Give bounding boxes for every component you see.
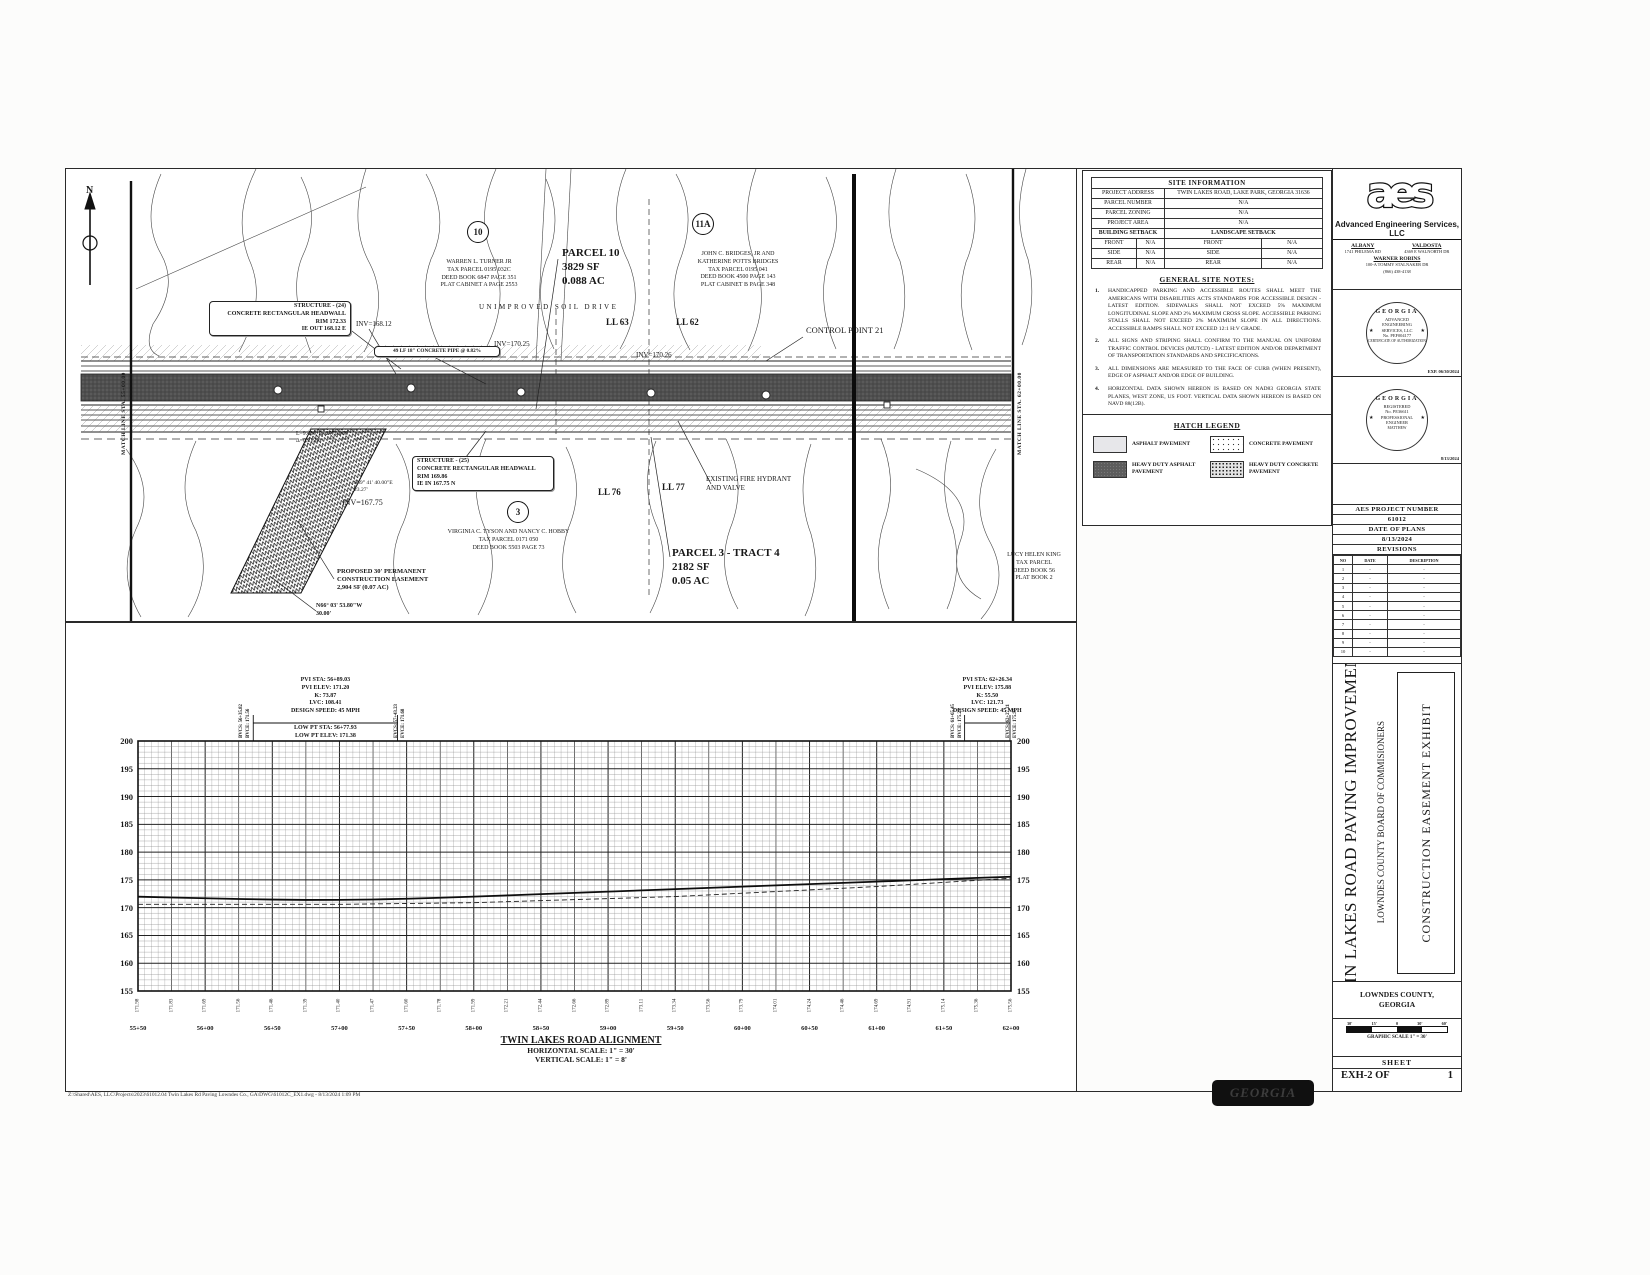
grade-elevation-value: 175.36 (975, 991, 980, 1021)
graphic-scale-bar (1346, 1026, 1448, 1033)
stamp-expiration: EXP. 06/30/2024 (1428, 369, 1459, 374)
parcel-3-label: PARCEL 3 - TRACT 42182 SF0.05 AC (672, 547, 780, 588)
grade-elevation-value: 173.56 (706, 991, 711, 1021)
project-number: 61012 (1333, 515, 1461, 525)
elevation-tick-right: 160 (1017, 958, 1030, 968)
station-label: 60+00 (720, 1025, 764, 1032)
match-line-right-label: MATCH LINE STA. 62+00.00 (1017, 372, 1023, 455)
sheet-number: EXH-2 OF (1341, 1070, 1390, 1081)
easement-label: PROPOSED 30' PERMANENTCONSTRUCTION EASEM… (337, 568, 428, 592)
blank-section (1333, 464, 1461, 505)
station-label: 61+00 (855, 1025, 899, 1032)
inv-168-label: INV=168.12 (356, 320, 392, 329)
profile-vertical-scale: VERTICAL SCALE: 1" = 8' (481, 1055, 681, 1064)
revision-row: 5-- (1334, 601, 1461, 610)
match-line-left-label: MATCH LINE STA. 55+00.00 (121, 372, 127, 455)
grade-elevation-value: 171.78 (438, 991, 443, 1021)
legend-item-asphalt: ASPHALT PAVEMENT (1093, 436, 1204, 453)
elevation-tick-left: 155 (111, 986, 133, 996)
revisions-table: NO DATE DESCRIPTION 1-- 2-- 3-- 4-- 5-- (1333, 555, 1461, 657)
owner-text-parcel-10: WARREN L. TURNER JRTAX PARCEL 0195 032CD… (399, 259, 559, 290)
evce-label: EVCE: 171.68 (401, 709, 406, 738)
station-label: 57+00 (317, 1025, 361, 1032)
title-block-column: aes Advanced Engineering Services, LLC A… (1332, 168, 1462, 1092)
site-info-label: PARCEL NUMBER (1092, 199, 1165, 209)
evcs-label: EVCS: 62+27.21 (1006, 704, 1011, 738)
site-note: 2. ALL SIGNS AND STRIPING SHALL CONFIRM … (1083, 338, 1331, 366)
site-info-label: PROJECT ADDRESS (1092, 189, 1165, 199)
pe-stamp-box: GEORGIA REGISTERED No. PE36611 PROFESSIO… (1333, 377, 1461, 464)
profile-horizontal-scale: HORIZONTAL SCALE: 1" = 30' (481, 1046, 681, 1055)
revision-row: 3-- (1334, 583, 1461, 592)
parcel-bubble-3: 3 (507, 501, 529, 523)
unimproved-drive-label: UNIMPROVED SOIL DRIVE (479, 303, 618, 312)
aes-logo: aes (1334, 169, 1460, 215)
asphalt-swatch (1093, 436, 1127, 453)
revision-row: 8-- (1334, 629, 1461, 638)
landscape-setback-header: LANDSCAPE SETBACK (1164, 229, 1322, 239)
station-label: 55+50 (116, 1025, 160, 1032)
professional-engineer-stamp: GEORGIA REGISTERED No. PE36611 PROFESSIO… (1366, 389, 1428, 451)
elevation-tick-right: 165 (1017, 930, 1030, 940)
bvcs-label: BVCS: 61+65.45 (951, 704, 956, 738)
setback-rows: FRONTN/AFRONTN/A SIDEN/ASIDEN/A REARN/AR… (1092, 239, 1323, 269)
elevation-tick-right: 180 (1017, 847, 1030, 857)
client-name: LOWNDES COUNTY BOARD OF COMMISIONERS (1376, 721, 1386, 923)
control-point-label: CONTROL POINT 21 (806, 325, 883, 336)
sheet-number-section: SHEET EXH-2 OF 1 (1333, 1057, 1461, 1087)
profile-view-panel: 2002001951951901901851851801801751751701… (65, 622, 1077, 1092)
building-setback-header: BUILDING SETBACK (1092, 229, 1165, 239)
revisions-section: NO DATE DESCRIPTION 1-- 2-- 3-- 4-- 5-- (1333, 555, 1461, 664)
elevation-tick-right: 175 (1017, 875, 1030, 885)
curve-data-label: L=9.480, R=2470.000Δ=0.2199 (296, 431, 348, 445)
station-label: 61+50 (922, 1025, 966, 1032)
stamp-date: 8/13/2024 (1441, 456, 1459, 461)
firm-logo-box: aes Advanced Engineering Services, LLC A… (1333, 169, 1461, 290)
general-site-notes-list: 1. HANDICAPPED PARKING AND ACCESSIBLE RO… (1083, 288, 1331, 414)
site-info-value: TWIN LAKES ROAD, LAKE PARK, GEORGIA 3163… (1164, 189, 1322, 199)
firm-phone: (866) 438-4138 (1333, 269, 1461, 274)
plan-sheet: { "colors":{"ink":"#1a1a1a","paper":"#ff… (0, 0, 1650, 1275)
site-info-value: N/A (1164, 209, 1322, 219)
site-info-title: SITE INFORMATION (1092, 178, 1323, 189)
revision-row: 9-- (1334, 638, 1461, 647)
grade-elevation-value: 174.24 (807, 991, 812, 1021)
grade-elevation-value: 173.11 (639, 991, 644, 1021)
exhibit-title-box: CONSTRUCTION EASEMENT EXHIBIT (1397, 672, 1455, 974)
fire-hydrant-label: EXISTING FIRE HYDRANTAND VALVE (706, 475, 791, 493)
station-label: 58+50 (519, 1025, 563, 1032)
profile-title: TWIN LAKES ROAD ALIGNMENT (481, 1035, 681, 1046)
graphic-scale-section: 30'15'030'60' GRAPHIC SCALE 1" = 30' (1333, 1019, 1461, 1057)
structure-24-callout: STRUCTURE - (24)CONCRETE RECTANGULAR HEA… (209, 301, 351, 336)
inv-170a-label: INV=170.25 (494, 340, 530, 349)
grade-elevation-value: 171.60 (404, 991, 409, 1021)
north-arrow-label: N (86, 185, 93, 196)
parcel-bubble-11a: 11A (692, 213, 714, 235)
grade-elevation-value: 171.83 (169, 991, 174, 1021)
legend-item-heavy-concrete: HEAVY DUTY CONCRETE PAVEMENT (1210, 461, 1321, 478)
heavy-asphalt-swatch (1093, 461, 1127, 478)
grade-elevation-value: 171.39 (303, 991, 308, 1021)
revision-row: 7-- (1334, 620, 1461, 629)
plan-linework (66, 169, 1076, 621)
plan-view-panel: N MATCH LINE STA. 55+00.00 MATCH LINE ST… (65, 168, 1077, 622)
owner-text-parcel-3: VIRGINIA C. TYSON AND NANCY C. HOBBYTAX … (436, 529, 581, 552)
parcel-10-label: PARCEL 103829 SF0.088 AC (562, 247, 620, 288)
revision-row: 1-- (1334, 565, 1461, 574)
certificate-stamp-box: GEORGIA ADVANCED ENGINEERING SERVICES, L… (1333, 290, 1461, 377)
rev-header-description: DESCRIPTION (1388, 556, 1461, 565)
station-label: 56+50 (250, 1025, 294, 1032)
grade-elevation-value: 171.56 (236, 991, 241, 1021)
elevation-tick-left: 190 (111, 792, 133, 802)
elevation-tick-right: 195 (1017, 764, 1030, 774)
bvce-label: BVCE: 175.25 (958, 709, 963, 738)
star-icon: ★ (1369, 329, 1373, 335)
bvcs-label: BVCS: 56+35.82 (239, 704, 244, 738)
revision-row: 4-- (1334, 592, 1461, 601)
elevation-tick-right: 190 (1017, 792, 1030, 802)
certificate-of-authorization-stamp: GEORGIA ADVANCED ENGINEERING SERVICES, L… (1366, 302, 1428, 364)
grade-elevation-value: 171.47 (371, 991, 376, 1021)
sheet-label: SHEET (1333, 1057, 1461, 1069)
revision-row: 6-- (1334, 611, 1461, 620)
file-path-footer: Z:\Shared\AES, LLC\Projects\2023\61012.0… (68, 1092, 360, 1098)
star-icon: ★ (1421, 329, 1425, 335)
site-info-value: N/A (1164, 199, 1322, 209)
grade-elevation-value: 172.66 (572, 991, 577, 1021)
bearing-n66-label: N66° 03' 53.80"W30.00' (316, 603, 362, 618)
elevation-tick-right: 185 (1017, 819, 1030, 829)
grade-elevation-value: 175.14 (941, 991, 946, 1021)
concrete-swatch (1210, 436, 1244, 453)
grade-elevation-value: 174.46 (841, 991, 846, 1021)
grade-elevation-value: 171.98 (136, 991, 141, 1021)
lot-line-76-label: LL 76 (598, 487, 621, 498)
lot-line-77-label: LL 77 (662, 482, 685, 493)
grade-elevation-value: 174.01 (773, 991, 778, 1021)
aes-logo-text: aes (1367, 169, 1434, 215)
owner-text-king: LUCY HELEN KINGTAX PARCELDEED BOOK 56PLA… (994, 552, 1074, 583)
pvi-annotation: PVI STA: 62+26.34PVI ELEV: 175.88K: 55.5… (912, 677, 1062, 716)
station-label: 62+00 (989, 1025, 1033, 1032)
grade-elevation-value: 171.99 (471, 991, 476, 1021)
elevation-tick-right: 170 (1017, 903, 1030, 913)
heavy-duty-asphalt-band (81, 374, 1011, 401)
site-info-label: PARCEL ZONING (1092, 209, 1165, 219)
lot-line-62-label: LL 62 (676, 317, 699, 328)
project-title: TWIN LAKES ROAD PAVING IMPROVEMENTS (1341, 664, 1361, 982)
revisions-label: REVISIONS (1333, 545, 1461, 554)
star-icon: ★ (1369, 416, 1373, 422)
station-label: 60+50 (788, 1025, 832, 1032)
date-of-plans: 8/13/2024 (1333, 535, 1461, 545)
site-info-value: N/A (1164, 219, 1322, 229)
elevation-tick-left: 165 (111, 930, 133, 940)
hatch-legend: HATCH LEGEND ASPHALT PAVEMENT CONCRETE P… (1083, 414, 1331, 486)
hatch-legend-title: HATCH LEGEND (1083, 421, 1331, 430)
station-label: 57+50 (385, 1025, 429, 1032)
revision-row: 10-- (1334, 647, 1461, 656)
grade-elevation-value: 174.91 (908, 991, 913, 1021)
grade-elevation-value: 171.69 (203, 991, 208, 1021)
graphic-scale-caption: GRAPHIC SCALE 1" = 30' (1333, 1035, 1461, 1040)
grade-elevation-value: 175.56 (1009, 991, 1014, 1021)
site-information-table: SITE INFORMATION PROJECT ADDRESS TWIN LA… (1091, 177, 1323, 269)
grade-elevation-value: 172.44 (538, 991, 543, 1021)
grade-elevation-value: 171.46 (270, 991, 275, 1021)
heavy-concrete-swatch (1210, 461, 1244, 478)
station-label: 59+00 (586, 1025, 630, 1032)
profile-title-block: TWIN LAKES ROAD ALIGNMENT HORIZONTAL SCA… (481, 1035, 681, 1064)
bvce-label: BVCE: 171.56 (246, 709, 251, 738)
office-albany: ALBANY 1741 PHILEMA RD (1345, 243, 1381, 254)
pipe-callout: 49 LF 18" CONCRETE PIPE @ 0.82% (374, 346, 500, 357)
lot-line-63-label: LL 63 (606, 317, 629, 328)
elevation-tick-left: 200 (111, 736, 133, 746)
station-label: 58+00 (452, 1025, 496, 1032)
revision-row: 2-- (1334, 574, 1461, 583)
grade-elevation-value: 174.69 (874, 991, 879, 1021)
site-note: 1. HANDICAPPED PARKING AND ACCESSIBLE RO… (1083, 288, 1331, 338)
general-site-notes-title: GENERAL SITE NOTES: (1083, 275, 1331, 284)
owner-text-parcel-11a: JOHN C. BRIDGES, JR ANDKATHERINE POTTS B… (658, 251, 818, 290)
grade-elevation-value: 173.79 (740, 991, 745, 1021)
project-info-section: AES PROJECT NUMBER 61012 DATE OF PLANS 8… (1333, 505, 1461, 555)
office-warner-robins: WARNER ROBINS 100-A TOMMY STALNAKER DR (1333, 256, 1461, 267)
county-line-2: GEORGIA (1379, 1000, 1415, 1010)
revision-rows: 1-- 2-- 3-- 4-- 5-- 6-- 7-- 8-- 9-- (1334, 565, 1461, 657)
elevation-tick-right: 200 (1017, 736, 1030, 746)
georgia-logo-stamp: GEORGIA (1212, 1080, 1314, 1106)
elevation-tick-left: 185 (111, 819, 133, 829)
rev-header-no: NO (1334, 556, 1353, 565)
elevation-tick-left: 175 (111, 875, 133, 885)
structure-25-callout: STRUCTURE - (25)CONCRETE RECTANGULAR HEA… (412, 456, 554, 491)
legend-item-concrete: CONCRETE PAVEMENT (1210, 436, 1321, 453)
grade-elevation-value: 173.34 (673, 991, 678, 1021)
elevation-tick-left: 170 (111, 903, 133, 913)
site-info-label: PROJECT AREA (1092, 219, 1165, 229)
elevation-tick-right: 155 (1017, 986, 1030, 996)
grade-elevation-value: 172.21 (505, 991, 510, 1021)
legend-item-heavy-asphalt: HEAVY DUTY ASPHALT PAVEMENT (1093, 461, 1204, 478)
rev-header-date: DATE (1353, 556, 1388, 565)
firm-name: Advanced Engineering Services, LLC (1333, 220, 1461, 240)
station-label: 59+50 (653, 1025, 697, 1032)
inv-167-label: INV=167.75 (342, 498, 383, 508)
low-point-annotation: LOW PT STA: 56+77.93LOW PT ELEV: 171.38 (260, 725, 390, 741)
site-note: 3. ALL DIMENSIONS ARE MEASURED TO THE FA… (1083, 366, 1331, 386)
elevation-tick-left: 180 (111, 847, 133, 857)
project-number-label: AES PROJECT NUMBER (1333, 505, 1461, 515)
grade-elevation-value: 172.89 (606, 991, 611, 1021)
sheet-titles-section: TWIN LAKES ROAD PAVING IMPROVEMENTS LOWN… (1333, 664, 1461, 982)
site-note: 4. HORIZONTAL DATA SHOWN HEREON IS BASED… (1083, 386, 1331, 414)
date-of-plans-label: DATE OF PLANS (1333, 525, 1461, 535)
sheet-total: 1 (1448, 1070, 1453, 1081)
office-valdosta: VALDOSTA 4369 E WALNORTH DR (1404, 243, 1449, 254)
star-icon: ★ (1421, 416, 1425, 422)
pvi-annotation: PVI STA: 56+89.03PVI ELEV: 171.20K: 73.8… (250, 677, 400, 716)
exhibit-title: CONSTRUCTION EASEMENT EXHIBIT (1419, 703, 1434, 942)
evce-label: EVCE: 175.97 (1013, 709, 1018, 738)
bearing-s69-label: S69° 41' 40.00"E23.27' (354, 480, 393, 494)
station-label: 56+00 (183, 1025, 227, 1032)
inv-170b-label: INV=170.26 (636, 351, 672, 360)
county-section: LOWNDES COUNTY, GEORGIA (1333, 982, 1461, 1019)
county-line-1: LOWNDES COUNTY, (1360, 990, 1434, 1000)
notes-column: SITE INFORMATION PROJECT ADDRESS TWIN LA… (1082, 170, 1332, 526)
evcs-label: EVCS: 57+43.23 (394, 704, 399, 738)
elevation-tick-left: 160 (111, 958, 133, 968)
grade-elevation-value: 171.40 (337, 991, 342, 1021)
elevation-tick-left: 195 (111, 764, 133, 774)
parcel-bubble-10: 10 (467, 221, 489, 243)
